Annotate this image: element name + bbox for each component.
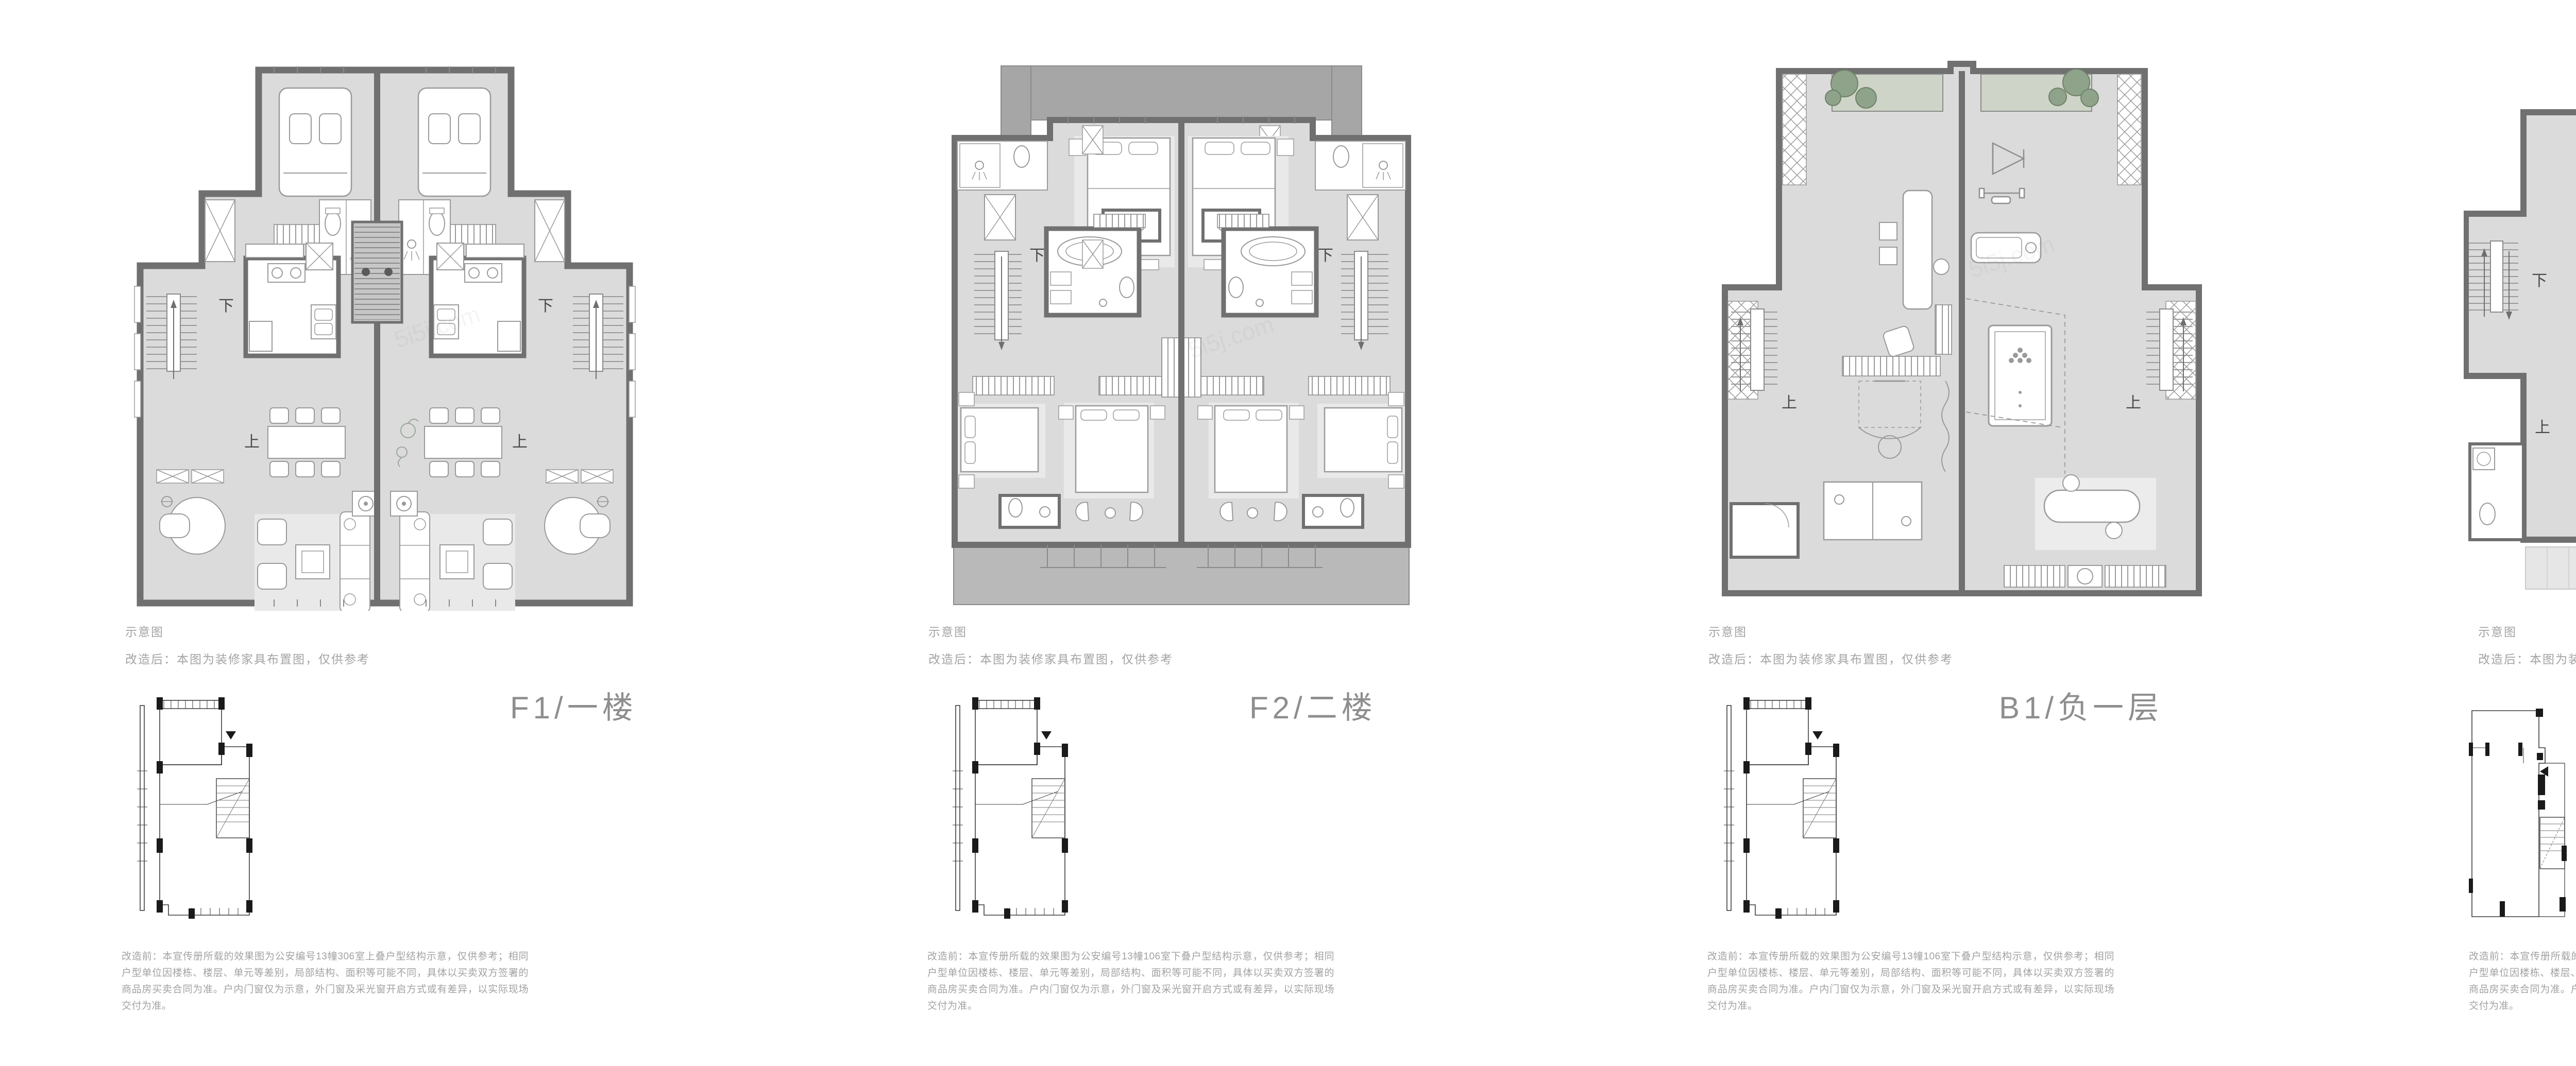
stair-down-label: 下 <box>1029 247 1045 264</box>
stair-up-label: 上 <box>512 434 528 451</box>
bottom-cabinets <box>2004 565 2166 587</box>
column-hatch <box>2117 74 2141 185</box>
party-wall <box>374 70 380 603</box>
billiards-table <box>1989 325 2052 426</box>
caption-label: 示意图 <box>2478 622 2576 640</box>
keyplan-columns <box>2469 709 2567 917</box>
wine-rack-comb <box>1842 356 1940 376</box>
keyplan-stair <box>216 779 249 838</box>
courtyard <box>1825 70 1943 111</box>
caption-note: 改造后：本图为装修家具布置图，仅供参考 <box>1708 649 1953 667</box>
title-f1: F1/一楼 <box>510 683 637 728</box>
study-desk <box>2035 475 2156 550</box>
keyplan-columns <box>972 697 1068 919</box>
shaft-dot <box>362 268 370 276</box>
caption-label: 示意图 <box>125 622 370 640</box>
disclaimer-mezzanine: 改造前：本宣传册所载的效果图为公安编号13幢106室下叠户型结构示意，仅供参考；… <box>2469 949 2576 1015</box>
disclaimer-b1: 改造前：本宣传册所载的效果图为公安编号13幢106室下叠户型结构示意，仅供参考；… <box>1707 949 2114 1015</box>
bathroom <box>2470 444 2523 540</box>
floor-plan-f1: 下 下 上 上 5i5j.com <box>120 19 650 611</box>
stair-down-label: 下 <box>218 298 234 315</box>
caption-note: 改造后：本图为装修家具布置图，仅供参考 <box>125 649 370 667</box>
disclaimer-f2: 改造前：本宣传册所载的效果图为公安编号13幢106室下叠户型结构示意，仅供参考；… <box>927 949 1334 1015</box>
shaft-dot <box>384 268 393 276</box>
keyplan-mezzanine <box>2456 686 2576 920</box>
stair-up-label: 上 <box>2126 394 2141 411</box>
stair-down-label: 下 <box>1318 247 1333 264</box>
keyplan-stair <box>2540 817 2565 869</box>
caption-f2: 示意图 改造后：本图为装修家具布置图，仅供参考 <box>928 622 1173 667</box>
floor-plan-f2: 下 下 5i5j.com <box>924 19 1439 611</box>
terrace <box>954 543 1409 605</box>
utility-room <box>1731 504 1798 557</box>
caption-note: 改造后：本图为装修家具布置图，仅供参考 <box>2478 649 2576 667</box>
caption-note: 改造后：本图为装修家具布置图，仅供参考 <box>928 649 1173 667</box>
stair-down-label: 下 <box>2532 272 2547 289</box>
pingpong-table <box>1824 482 1922 540</box>
caption-f1: 示意图 改造后：本图为装修家具布置图，仅供参考 <box>125 622 370 667</box>
courtyard <box>1981 69 2098 111</box>
column-hatch <box>1783 74 1806 185</box>
caption-b1: 示意图 改造后：本图为装修家具布置图，仅供参考 <box>1708 622 1953 667</box>
stair-up-label: 上 <box>1782 394 1797 411</box>
floor-plan-mezzanine: 下 下 上 上 5i5j.com <box>2464 21 2576 610</box>
keyplan-stair <box>1803 779 1836 838</box>
caption-mezzanine: 示意图 改造后：本图为装修家具布置图，仅供参考 <box>2478 622 2576 667</box>
keyplan-f2 <box>945 686 1080 920</box>
party-wall <box>1959 71 1965 593</box>
keyplan-columns <box>157 697 252 919</box>
stair-down-label: 下 <box>538 298 553 315</box>
floor-plan-sheet: 下 下 上 上 5i5j.com <box>0 0 2576 1066</box>
rack-comb <box>1935 305 1952 354</box>
keyplan-stair <box>1032 779 1065 838</box>
caption-label: 示意图 <box>1708 622 1953 640</box>
caption-label: 示意图 <box>928 622 1173 640</box>
floor-plan-b1: 上 上 5i5j.com <box>1704 21 2219 610</box>
stair-up-label: 上 <box>244 434 260 451</box>
shaft-ladder <box>354 225 400 320</box>
disclaimer-f1: 改造前：本宣传册所载的效果图为公安编号13幢306室上叠户型结构示意，仅供参考；… <box>122 949 529 1015</box>
keyplan-b1 <box>1717 686 1852 920</box>
keyplan-f1 <box>130 686 265 920</box>
party-wall <box>1178 120 1184 545</box>
title-f2: F2/二楼 <box>1249 683 1377 728</box>
keyplan-columns <box>1743 697 1839 919</box>
stair-up-label: 上 <box>2535 419 2550 436</box>
title-b1: B1/负一层 <box>1999 683 2163 728</box>
